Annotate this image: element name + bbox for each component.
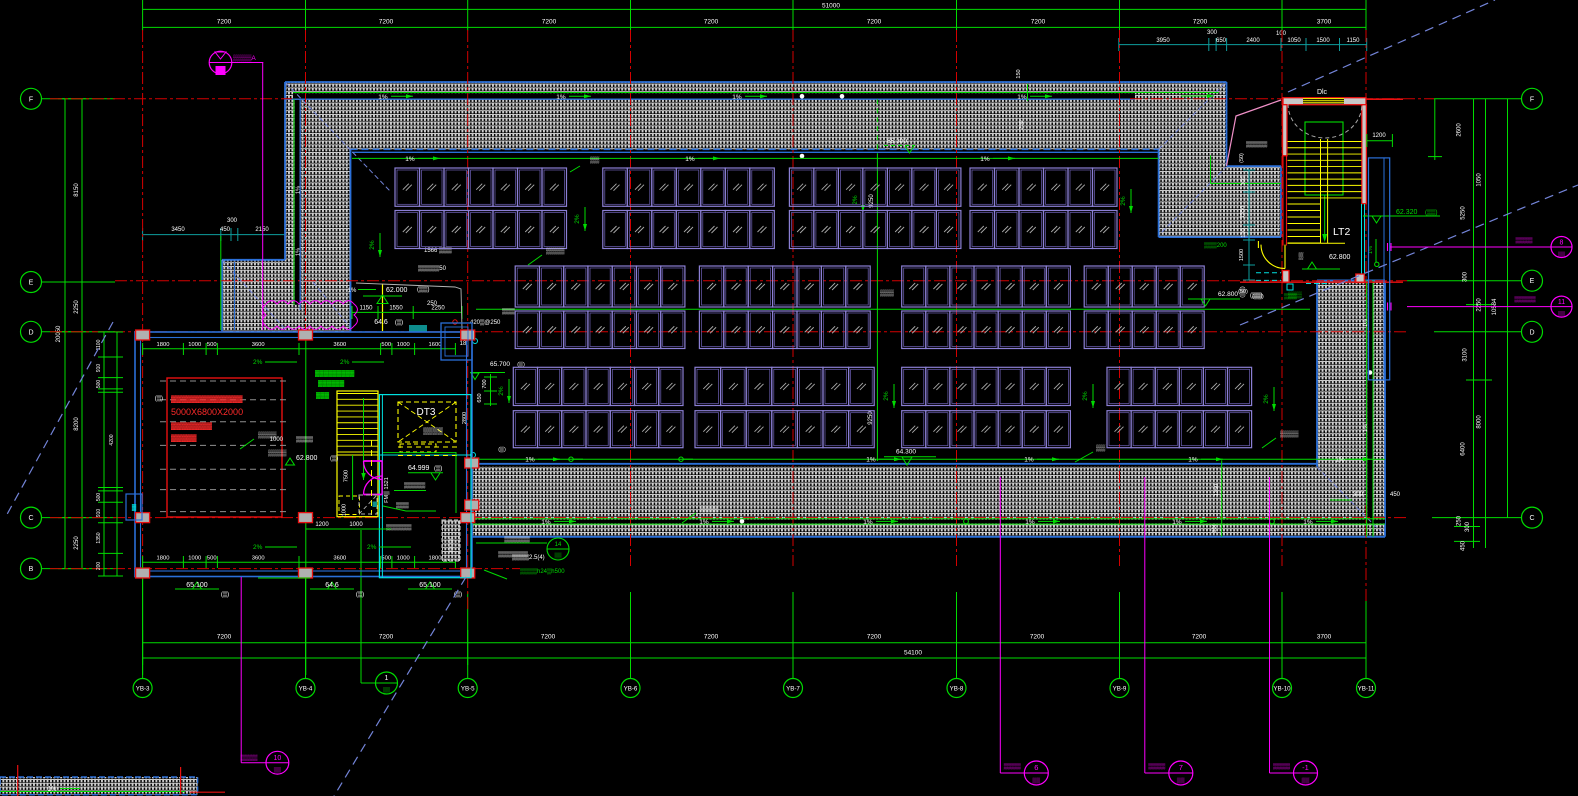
svg-text:1%: 1%	[405, 156, 415, 163]
svg-text:14: 14	[555, 542, 562, 548]
svg-text:7200: 7200	[379, 19, 394, 26]
svg-text:▒▒▒▒▒▒: ▒▒▒▒▒▒	[504, 536, 530, 543]
svg-text:3450: 3450	[171, 227, 185, 233]
svg-text:64.300: 64.300	[896, 449, 916, 456]
svg-text:▒▒: ▒▒	[1558, 251, 1566, 258]
svg-text:YB-4: YB-4	[299, 686, 313, 693]
svg-text:3600: 3600	[252, 556, 265, 562]
svg-text:YB-3: YB-3	[136, 686, 150, 693]
svg-text:6400: 6400	[1461, 442, 1467, 456]
svg-text:▒▒▒▒: ▒▒▒▒	[1148, 763, 1166, 770]
svg-text:250: 250	[1456, 515, 1462, 526]
svg-text:2%: 2%	[367, 544, 377, 551]
svg-text:1%: 1%	[1188, 457, 1198, 464]
svg-text:1%: 1%	[1335, 457, 1345, 464]
svg-text:▒▒: ▒▒	[1032, 777, 1040, 784]
svg-text:F: F	[29, 96, 33, 103]
svg-text:DT3: DT3	[417, 407, 436, 418]
svg-text:500: 500	[381, 342, 391, 348]
svg-text:▓▓▓▓▓▓: ▓▓▓▓▓▓	[318, 380, 345, 387]
svg-text:▓▓▓: ▓▓▓	[316, 392, 330, 399]
svg-text:1%: 1%	[525, 457, 535, 464]
svg-text:▓▓▓▓▓▓▓▓: ▓▓▓▓▓▓▓▓	[171, 422, 213, 430]
svg-text:1%: 1%	[1024, 457, 1034, 464]
svg-text:450: 450	[220, 227, 231, 233]
svg-text:▒▒: ▒▒	[274, 767, 282, 774]
svg-text:YB-9: YB-9	[1113, 686, 1127, 693]
svg-text:1000: 1000	[397, 556, 410, 562]
svg-text:(▒): (▒)	[498, 446, 506, 453]
svg-text:YB-5: YB-5	[461, 686, 475, 693]
svg-text:8000: 8000	[1477, 415, 1483, 429]
svg-text:3600: 3600	[333, 556, 346, 562]
svg-text:1350: 1350	[1214, 484, 1220, 496]
svg-text:1%: 1%	[541, 519, 551, 526]
svg-text:1050: 1050	[1477, 173, 1483, 187]
svg-text:▒▒▒▒: ▒▒▒▒	[1280, 430, 1299, 438]
svg-text:▒▒▒▒: ▒▒▒▒	[546, 247, 565, 255]
svg-text:E: E	[1530, 278, 1535, 285]
svg-text:▒▒▒▒▒: ▒▒▒▒▒	[1246, 141, 1268, 148]
svg-text:10: 10	[274, 755, 282, 762]
svg-text:250: 250	[1019, 120, 1025, 129]
svg-text:7200: 7200	[541, 634, 556, 641]
svg-text:(▒): (▒)	[155, 395, 163, 402]
svg-text:1%: 1%	[866, 457, 876, 464]
svg-text:▒▒: ▒▒	[554, 552, 562, 559]
svg-text:65.100: 65.100	[419, 582, 441, 589]
svg-text:▒▒: ▒▒	[1177, 777, 1185, 784]
svg-text:▒▒: ▒▒	[1558, 311, 1566, 318]
svg-text:▒▒▒: ▒▒▒	[880, 289, 894, 297]
svg-text:2%: 2%	[253, 544, 263, 551]
svg-text:1150: 1150	[1347, 38, 1361, 44]
svg-text:1%: 1%	[1025, 519, 1035, 526]
svg-text:(▒): (▒)	[356, 591, 364, 598]
svg-text:1100: 1100	[96, 339, 102, 350]
svg-text:65.100: 65.100	[186, 582, 208, 589]
svg-text:850: 850	[1212, 523, 1218, 532]
svg-text:▒▒▒▒: ▒▒▒▒	[258, 431, 277, 439]
svg-text:1%: 1%	[556, 94, 566, 101]
svg-text:7: 7	[1179, 763, 1183, 772]
svg-text:2%: 2%	[253, 359, 263, 366]
svg-text:▓▓▓▓▓▓▓▓▓▓▓▓▓▓: ▓▓▓▓▓▓▓▓▓▓▓▓▓▓	[171, 395, 243, 403]
svg-text:9250: 9250	[869, 194, 875, 208]
svg-text:2%: 2%	[852, 195, 859, 205]
svg-text:3600: 3600	[252, 342, 265, 348]
svg-text:▒: ▒	[449, 538, 454, 545]
svg-text:▒▒: ▒▒	[590, 156, 600, 164]
svg-text:E: E	[29, 280, 34, 287]
svg-text:7200: 7200	[704, 634, 719, 641]
svg-text:2%: 2%	[1263, 394, 1270, 404]
svg-text:62.000: 62.000	[386, 287, 408, 294]
svg-text:910: 910	[96, 364, 102, 373]
svg-text:(▒▒): (▒▒)	[417, 286, 430, 293]
svg-text:62.800: 62.800	[1329, 254, 1351, 261]
svg-text:▒▒▒200: ▒▒▒200	[1204, 242, 1227, 249]
svg-text:4200: 4200	[109, 434, 115, 445]
svg-text:YB-7: YB-7	[786, 686, 800, 693]
svg-text:300: 300	[1207, 30, 1218, 36]
svg-text:2400: 2400	[1246, 38, 1260, 44]
svg-text:7200: 7200	[1193, 19, 1208, 26]
svg-text:▒▒: ▒▒	[1096, 444, 1106, 452]
svg-text:7200: 7200	[867, 19, 882, 26]
svg-text:1600: 1600	[429, 342, 442, 348]
svg-text:1%: 1%	[1017, 94, 1027, 101]
svg-text:500: 500	[207, 556, 217, 562]
svg-text:▒▒▒▒h24▒h500: ▒▒▒▒h24▒h500	[520, 568, 565, 575]
svg-text:(50): (50)	[1238, 289, 1248, 295]
svg-text:300: 300	[1462, 271, 1468, 282]
svg-text:1350: 1350	[1240, 206, 1246, 218]
svg-text:500: 500	[96, 493, 102, 502]
svg-text:(▒): (▒)	[395, 319, 403, 326]
svg-text:▒▒: ▒▒	[383, 687, 391, 694]
svg-text:▒▒▒▒: ▒▒▒▒	[1515, 237, 1533, 244]
svg-text:11: 11	[1558, 299, 1565, 306]
svg-text:▒▒▒▒A: ▒▒▒▒A	[233, 54, 256, 62]
svg-text:18: 18	[460, 341, 467, 347]
svg-text:2%: 2%	[883, 391, 890, 401]
svg-text:▒▒▒▒▒: ▒▒▒▒▒	[1514, 296, 1536, 303]
svg-text:62.800: 62.800	[296, 455, 318, 462]
svg-text:910: 910	[96, 509, 102, 518]
svg-text:7500: 7500	[344, 470, 350, 482]
svg-text:1200: 1200	[315, 522, 329, 528]
svg-text:▒▒▒▒2.5(4): ▒▒▒▒2.5(4)	[512, 554, 545, 561]
svg-text:7200: 7200	[542, 19, 557, 26]
svg-text:300: 300	[1465, 521, 1471, 532]
svg-text:-1: -1	[1302, 763, 1309, 772]
svg-text:(▒): (▒)	[221, 591, 229, 598]
svg-text:1800: 1800	[157, 556, 170, 562]
svg-text:1%: 1%	[1363, 424, 1369, 432]
svg-text:300: 300	[1353, 492, 1364, 498]
svg-text:▓: ▓	[132, 504, 137, 511]
svg-text:100: 100	[1241, 228, 1247, 237]
svg-text:1000: 1000	[188, 556, 201, 562]
svg-text:1050: 1050	[1287, 38, 1301, 44]
svg-text:420▒@250: 420▒@250	[470, 319, 501, 326]
svg-text:5000X6800X2000: 5000X6800X2000	[171, 407, 243, 417]
svg-text:2250: 2250	[1477, 298, 1483, 312]
svg-text:7200: 7200	[1030, 634, 1045, 641]
svg-text:2%: 2%	[498, 386, 505, 396]
svg-text:1000: 1000	[188, 342, 201, 348]
svg-text:▓▓▓▓▓▓▓▓▓: ▓▓▓▓▓▓▓▓▓	[315, 370, 355, 377]
svg-text:1%: 1%	[980, 156, 990, 163]
svg-text:7200: 7200	[1031, 19, 1046, 26]
svg-text:450: 450	[1461, 540, 1467, 551]
svg-text:2%: 2%	[1120, 196, 1127, 206]
svg-text:D: D	[1529, 329, 1534, 336]
svg-text:(▒): (▒)	[434, 465, 442, 472]
svg-text:▒▒▒▒: ▒▒▒▒	[268, 449, 287, 457]
svg-text:1%: 1%	[348, 288, 357, 294]
svg-text:1%: 1%	[732, 94, 742, 101]
svg-text:6: 6	[1034, 763, 1038, 772]
svg-text:54100: 54100	[904, 650, 922, 657]
svg-text:2800: 2800	[462, 412, 468, 424]
svg-text:(▒▒): (▒▒)	[1425, 209, 1438, 216]
svg-text:1%: 1%	[1172, 519, 1182, 526]
svg-text:500: 500	[207, 342, 217, 348]
svg-text:FM▒ 1521: FM▒ 1521	[383, 477, 390, 503]
svg-text:65.700: 65.700	[490, 361, 510, 368]
svg-text:200: 200	[96, 562, 102, 571]
svg-text:▒▒▒▒▒▒: ▒▒▒▒▒▒	[386, 524, 412, 531]
svg-text:(50): (50)	[1239, 153, 1245, 163]
svg-text:▒▒▒▒: ▒▒▒▒	[296, 436, 314, 443]
svg-text:2600: 2600	[1456, 123, 1462, 137]
svg-text:C: C	[28, 515, 33, 522]
svg-text:F: F	[1530, 96, 1534, 103]
svg-text:3100: 3100	[1462, 348, 1468, 362]
svg-text:1%: 1%	[863, 519, 873, 526]
svg-text:1350: 1350	[96, 532, 102, 543]
svg-text:3700: 3700	[1317, 634, 1332, 641]
svg-text:▓▓▓▓▓: ▓▓▓▓▓	[171, 434, 197, 442]
svg-text:1800: 1800	[157, 342, 170, 348]
svg-text:▒: ▒	[1299, 252, 1304, 260]
svg-text:8200: 8200	[74, 417, 80, 431]
svg-text:LT2: LT2	[1333, 226, 1350, 238]
svg-text:62.800: 62.800	[1218, 291, 1238, 298]
svg-text:2250: 2250	[431, 306, 445, 312]
svg-text:62.320: 62.320	[1396, 209, 1418, 216]
svg-text:C: C	[1529, 515, 1534, 522]
svg-text:3600: 3600	[333, 342, 346, 348]
svg-text:650: 650	[1216, 38, 1227, 44]
svg-text:D: D	[28, 329, 33, 336]
svg-text:1%: 1%	[378, 94, 388, 101]
svg-text:7200: 7200	[379, 634, 394, 641]
svg-text:7200: 7200	[217, 634, 232, 641]
svg-text:▒▒▒: ▒▒▒	[1288, 291, 1302, 299]
svg-text:1%: 1%	[685, 156, 695, 163]
svg-text:2%: 2%	[369, 240, 376, 250]
svg-text:YB-11: YB-11	[1358, 686, 1375, 693]
svg-text:450: 450	[1390, 492, 1401, 498]
svg-text:2250: 2250	[74, 300, 80, 314]
svg-text:1%: 1%	[48, 787, 57, 793]
svg-text:20050: 20050	[56, 325, 62, 342]
svg-text:5250: 5250	[1461, 206, 1467, 220]
svg-text:1%: 1%	[699, 519, 709, 526]
svg-text:▒: ▒	[449, 546, 454, 553]
svg-text:2%: 2%	[574, 214, 581, 224]
svg-text:1000: 1000	[397, 342, 410, 348]
svg-text:▒▒▒▒: ▒▒▒▒	[241, 755, 259, 762]
svg-text:1550: 1550	[389, 306, 403, 312]
svg-text:8150: 8150	[74, 183, 80, 197]
svg-text:▒▒▒▒▒50: ▒▒▒▒▒50	[418, 265, 447, 272]
svg-text:▒▒▒▒: ▒▒▒▒	[1273, 763, 1291, 770]
svg-text:2%: 2%	[1082, 391, 1089, 401]
svg-text:▒▒▒▒: ▒▒▒▒	[700, 505, 719, 513]
svg-text:YB-8: YB-8	[950, 686, 964, 693]
svg-text:1%: 1%	[296, 186, 302, 194]
svg-text:YB-10: YB-10	[1273, 686, 1291, 693]
svg-text:3950: 3950	[1156, 38, 1170, 44]
svg-text:1800: 1800	[429, 556, 442, 562]
svg-text:64.6: 64.6	[374, 319, 388, 326]
svg-text:1%: 1%	[296, 248, 302, 256]
svg-text:1%: 1%	[1303, 519, 1313, 526]
svg-text:300: 300	[227, 218, 238, 224]
svg-text:1200: 1200	[1372, 133, 1386, 139]
svg-text:2250: 2250	[74, 536, 80, 550]
svg-text:650: 650	[477, 393, 483, 402]
svg-text:1150: 1150	[360, 306, 374, 312]
svg-text:150: 150	[1016, 69, 1022, 78]
svg-text:7200: 7200	[867, 634, 882, 641]
svg-text:1: 1	[385, 675, 389, 682]
svg-text:(▒▒): (▒▒)	[1252, 293, 1264, 300]
svg-text:B: B	[29, 566, 34, 573]
svg-text:▒▒▒▒: ▒▒▒▒	[1004, 763, 1022, 770]
svg-text:7200: 7200	[1192, 634, 1207, 641]
svg-text:▒▒▒▒: ▒▒▒▒	[423, 427, 443, 435]
svg-text:2%: 2%	[340, 359, 350, 366]
svg-text:700: 700	[482, 379, 488, 388]
svg-text:500: 500	[96, 380, 102, 389]
svg-text:65.300: 65.300	[887, 138, 907, 145]
svg-text:7200: 7200	[704, 19, 719, 26]
svg-text:3700: 3700	[1317, 19, 1332, 26]
svg-text:YB-6: YB-6	[624, 686, 638, 693]
svg-text:8: 8	[1560, 240, 1564, 247]
svg-text:1500: 1500	[1239, 249, 1245, 261]
svg-text:1000: 1000	[342, 504, 348, 516]
svg-text:64.6: 64.6	[325, 582, 339, 589]
svg-text:51000: 51000	[822, 3, 840, 10]
svg-text:300: 300	[1241, 176, 1247, 185]
svg-text:▒▒▒: ▒▒▒	[396, 502, 410, 509]
svg-text:▒▒▒: ▒▒▒	[502, 308, 516, 315]
svg-text:7200: 7200	[217, 19, 232, 26]
svg-text:▒▒: ▒▒	[1302, 777, 1310, 784]
svg-text:▒▒▒▒▒: ▒▒▒▒▒	[404, 482, 426, 489]
svg-text:(▒): (▒)	[330, 455, 338, 462]
svg-text:1500: 1500	[1316, 38, 1330, 44]
svg-text:1000: 1000	[349, 522, 363, 528]
svg-text:64.999: 64.999	[408, 465, 430, 472]
svg-text:100: 100	[1276, 31, 1287, 37]
svg-text:Dlc: Dlc	[1317, 89, 1328, 96]
